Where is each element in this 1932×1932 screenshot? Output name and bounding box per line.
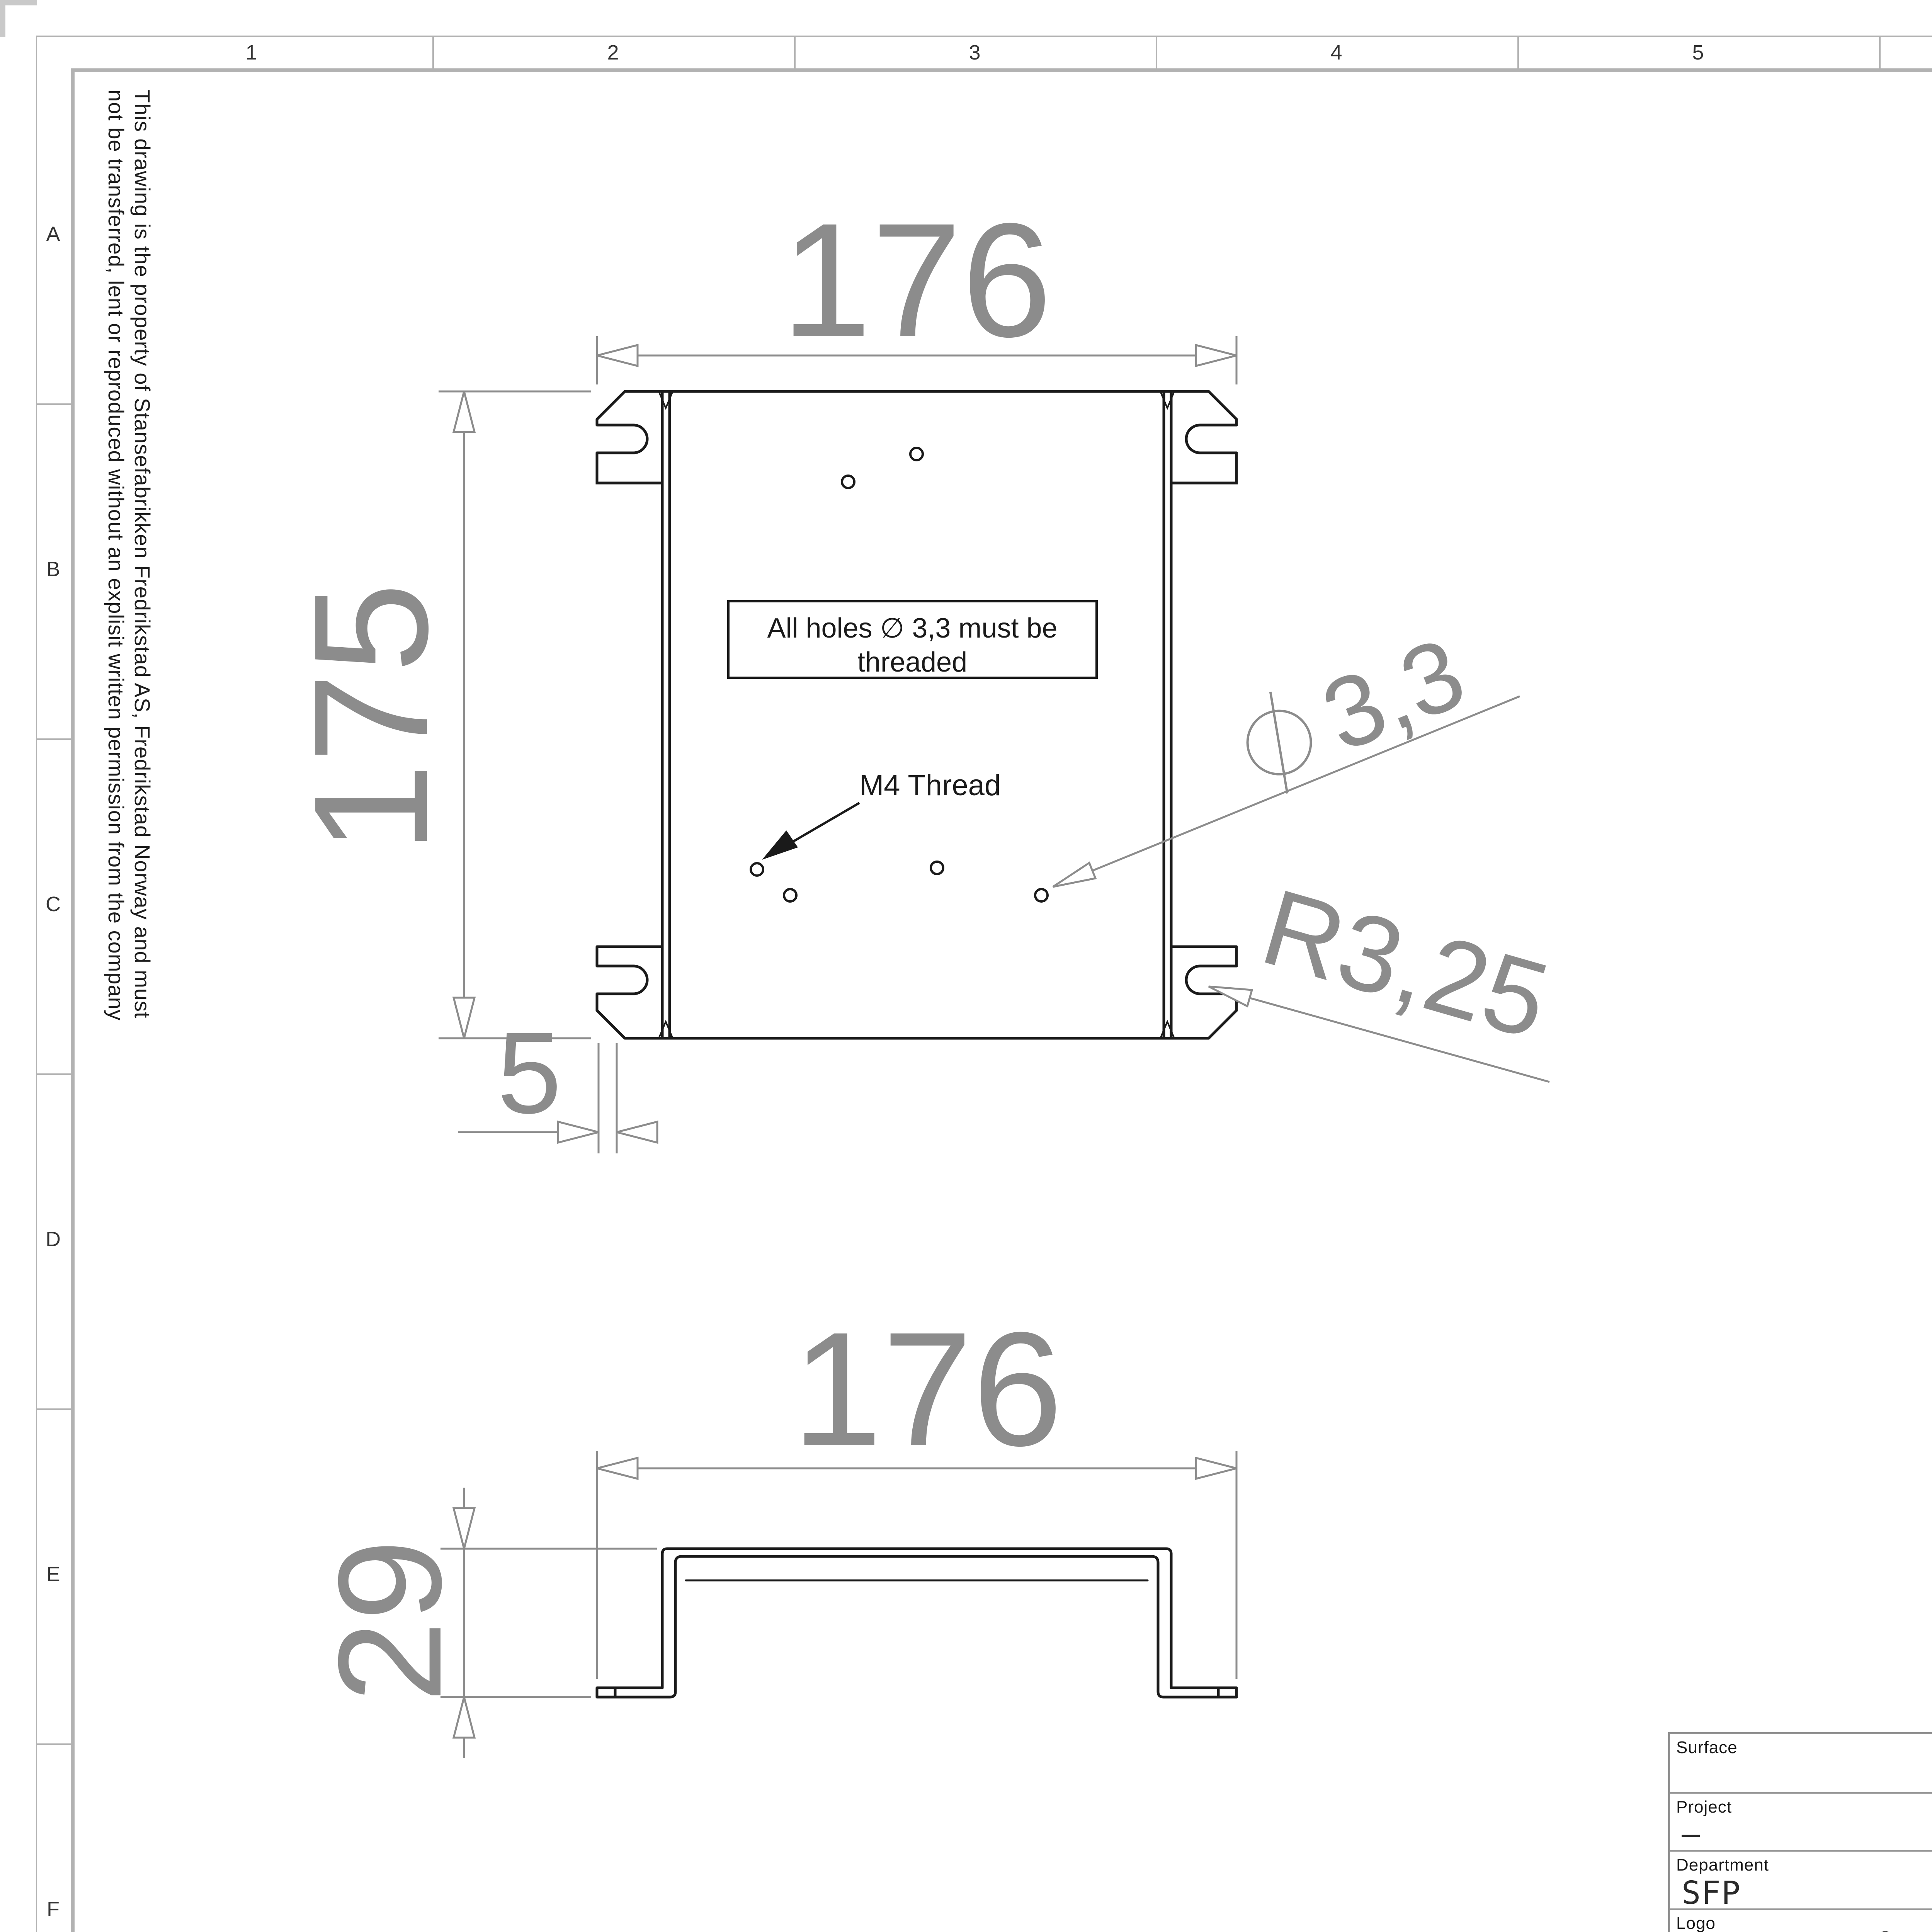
dim-width: 176 [781, 190, 1052, 371]
dim-width: 176 [792, 1299, 1063, 1480]
annotations-black: All holes ∅ 3,3 must be threaded M4 Thre… [762, 613, 1058, 860]
corner-slot [597, 966, 647, 994]
corner-slot [597, 425, 647, 453]
leader-arrow [762, 830, 798, 860]
cell-department: Department SFP [1670, 1850, 1932, 1908]
dimension-text-side: 176 29 [308, 1299, 1063, 1702]
dim-height: 29 [308, 1539, 472, 1703]
department-value: SFP [1670, 1875, 1932, 1912]
logo-label: Logo [1670, 1910, 1932, 1932]
corner-slot [1186, 425, 1236, 453]
engineering-drawing-sheet: { "frame": { "columns": ["1","2","3","4"… [0, 0, 1932, 1932]
diameter-callout: 3,3 [1228, 617, 1480, 805]
drawing-canvas: All holes ∅ 3,3 must be threaded M4 Thre… [0, 0, 1932, 1932]
hole-diameter-text: 3,3 [1308, 617, 1480, 773]
project-value: – [1670, 1817, 1932, 1852]
department-label: Department [1670, 1852, 1932, 1875]
cell-surface: Surface [1670, 1734, 1932, 1792]
thread-callout-text: M4 Thread [859, 769, 1001, 802]
project-label: Project [1670, 1794, 1932, 1817]
note-line-2: threaded [857, 647, 967, 678]
cell-project: Project – [1670, 1792, 1932, 1850]
cell-logo: Logo STANSEfabrikken [1670, 1908, 1932, 1932]
note-line-1: All holes ∅ 3,3 must be [767, 613, 1057, 644]
side-view [597, 1549, 1236, 1697]
surface-label: Surface [1670, 1734, 1932, 1757]
dimensions-side-view [440, 1451, 1236, 1758]
dim-height: 175 [281, 583, 462, 854]
title-block: Surface Material Galvanized Steel Sheet … [1668, 1732, 1932, 1932]
dim-offset: 5 [497, 1008, 562, 1138]
front-view [597, 391, 1236, 1038]
corner-radius-text: R3,25 [1250, 866, 1561, 1062]
logo-icon [1848, 1930, 1932, 1932]
